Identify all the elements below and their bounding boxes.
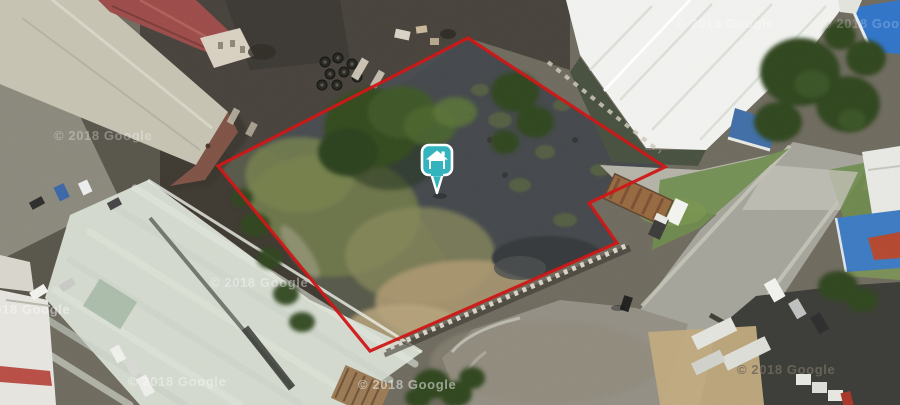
map-viewport[interactable]: © 2018 Google © 2018 Google © 2018 Googl… [0,0,900,405]
photo-grain-overlay [0,0,900,405]
